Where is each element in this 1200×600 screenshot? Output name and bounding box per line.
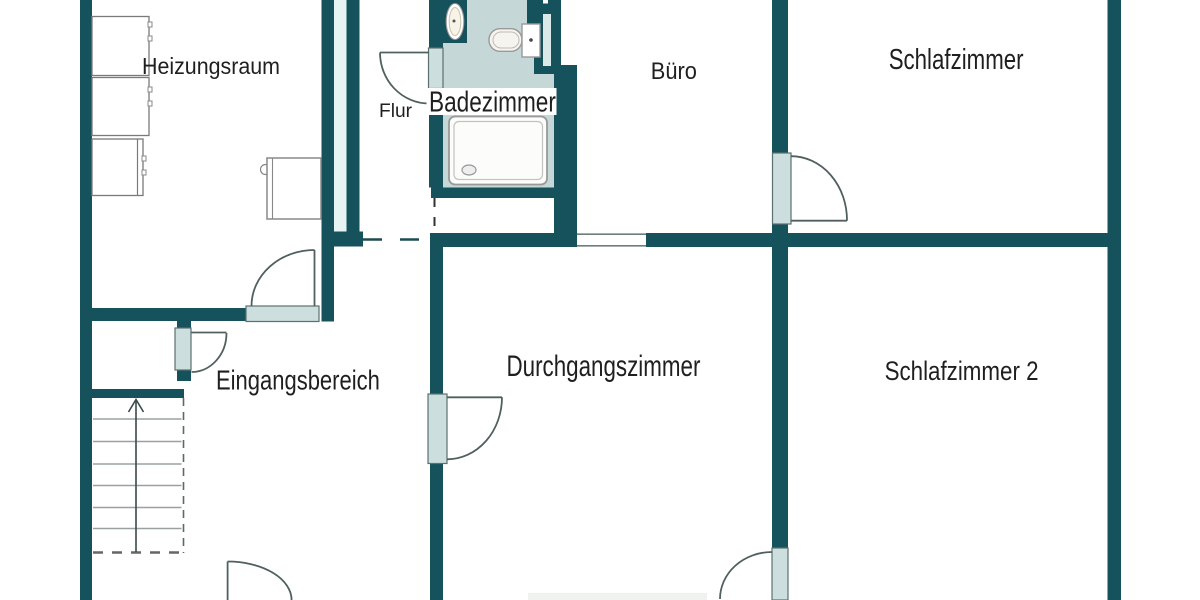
svg-text:Flur: Flur [379, 101, 413, 122]
svg-text:Schlafzimmer: Schlafzimmer [889, 45, 1024, 76]
svg-text:Büro: Büro [651, 57, 697, 84]
svg-text:Eingangsbereich: Eingangsbereich [216, 365, 380, 396]
svg-text:Schlafzimmer 2: Schlafzimmer 2 [885, 357, 1039, 386]
svg-text:Durchgangszimmer: Durchgangszimmer [506, 349, 700, 383]
svg-text:Heizungsraum: Heizungsraum [142, 53, 280, 79]
svg-text:Badezimmer: Badezimmer [429, 85, 556, 118]
